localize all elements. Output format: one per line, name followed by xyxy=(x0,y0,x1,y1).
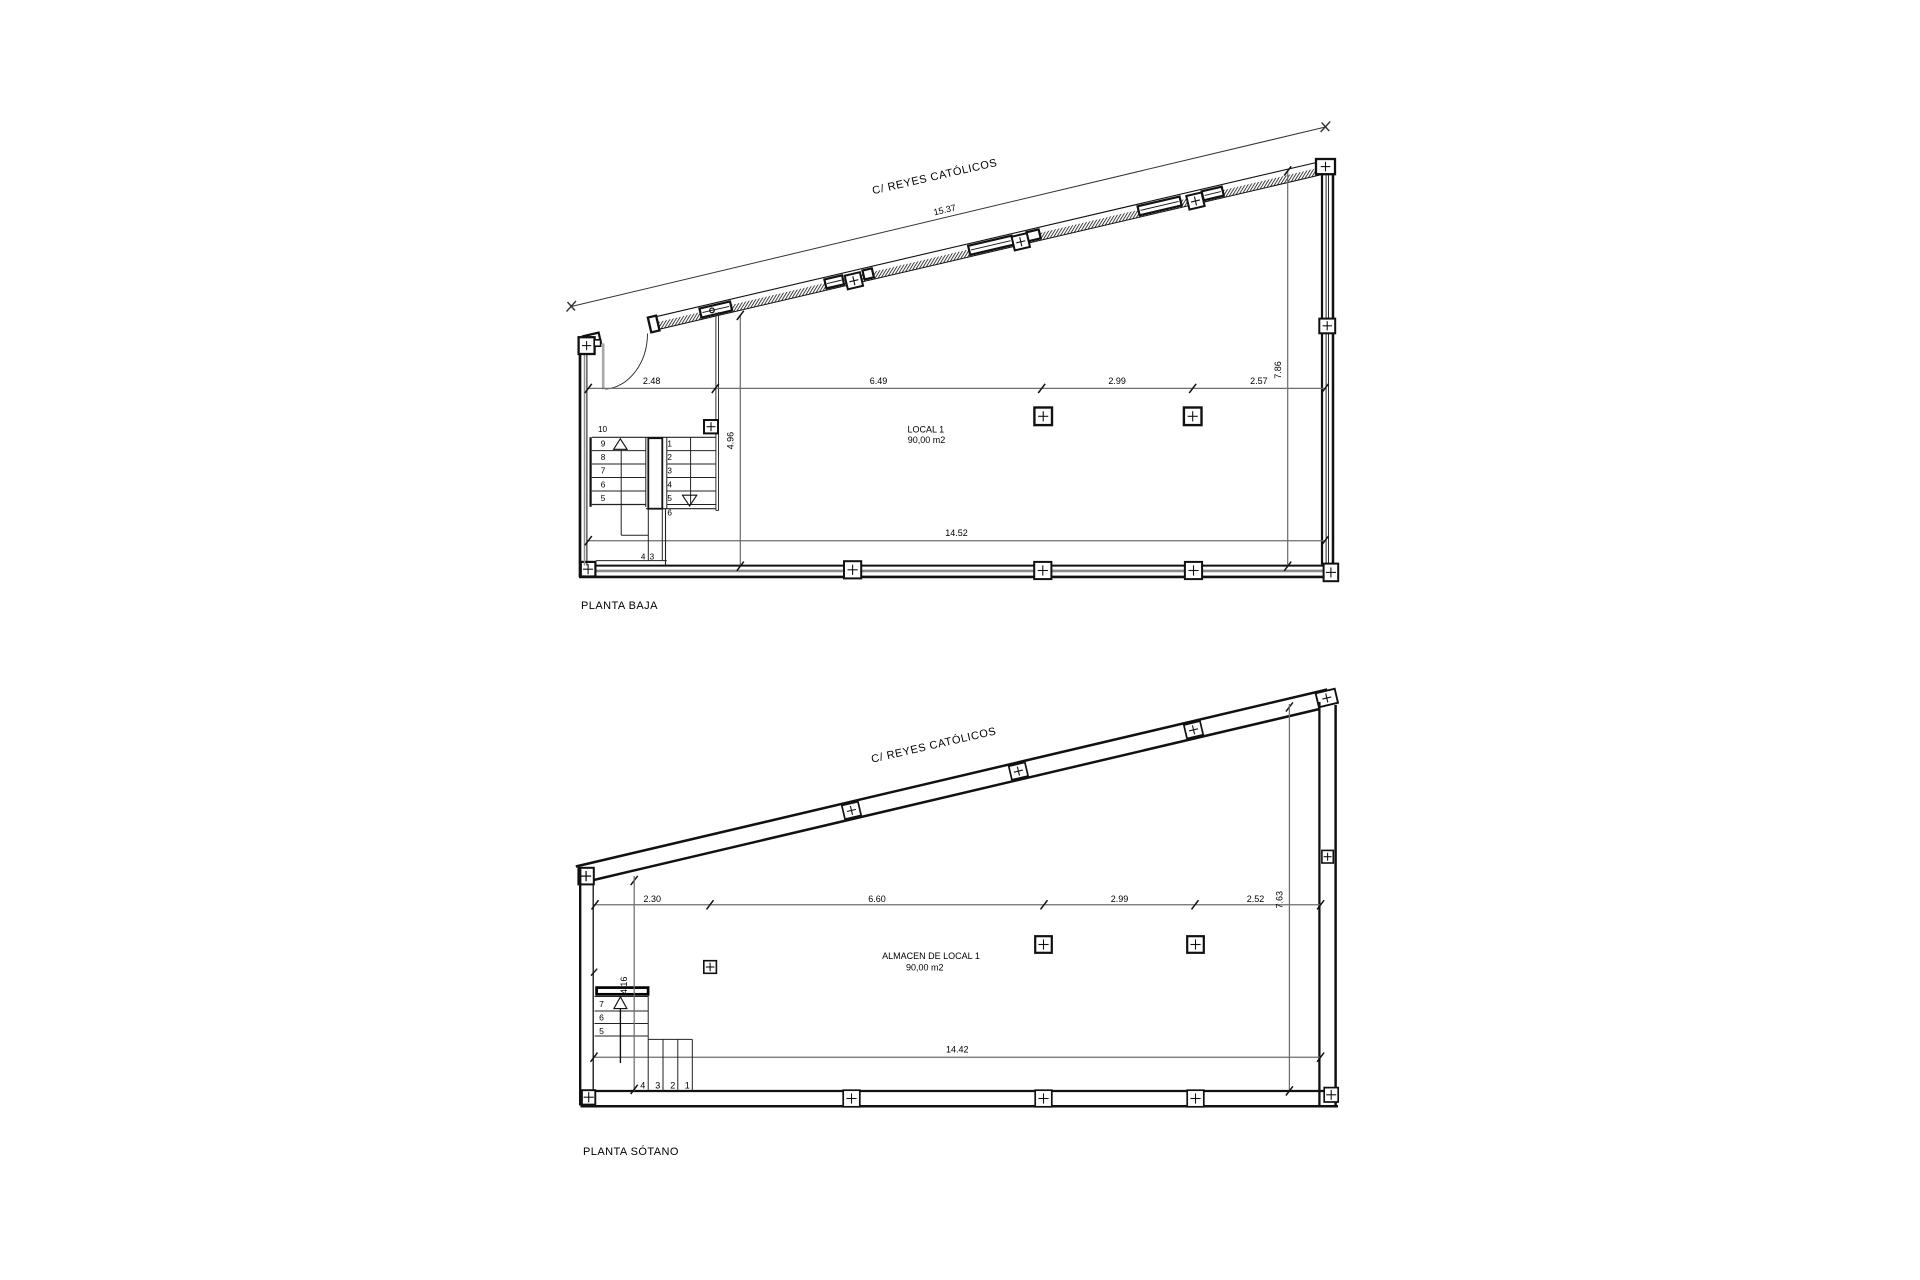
svg-text:3: 3 xyxy=(650,552,655,561)
svg-text:2.99: 2.99 xyxy=(1108,376,1126,386)
svg-text:5: 5 xyxy=(667,494,672,503)
svg-text:4.96: 4.96 xyxy=(725,432,735,450)
svg-text:ALMACEN DE LOCAL 1: ALMACEN DE LOCAL 1 xyxy=(882,951,980,961)
svg-text:14.52: 14.52 xyxy=(945,528,968,538)
svg-text:LOCAL 1: LOCAL 1 xyxy=(907,425,944,435)
svg-text:2.52: 2.52 xyxy=(1247,894,1265,904)
svg-text:3: 3 xyxy=(667,467,672,476)
svg-text:1: 1 xyxy=(685,1081,690,1091)
svg-text:90,00 m2: 90,00 m2 xyxy=(908,435,946,445)
svg-text:2.99: 2.99 xyxy=(1111,894,1129,904)
svg-text:4: 4 xyxy=(640,1081,645,1091)
svg-text:5: 5 xyxy=(599,1026,604,1036)
svg-text:5: 5 xyxy=(601,494,606,503)
svg-text:9: 9 xyxy=(601,439,606,448)
svg-text:7: 7 xyxy=(601,467,606,476)
svg-text:6.49: 6.49 xyxy=(870,376,888,386)
svg-text:4: 4 xyxy=(641,552,646,561)
svg-text:7.86: 7.86 xyxy=(1273,361,1283,379)
svg-text:14.42: 14.42 xyxy=(946,1044,969,1054)
svg-text:7: 7 xyxy=(599,999,604,1009)
svg-text:3: 3 xyxy=(655,1081,660,1091)
svg-text:2.48: 2.48 xyxy=(643,376,661,386)
svg-text:2: 2 xyxy=(667,453,672,462)
svg-text:PLANTA SÓTANO: PLANTA SÓTANO xyxy=(583,1145,679,1158)
svg-text:6: 6 xyxy=(601,480,606,489)
svg-text:2.57: 2.57 xyxy=(1250,376,1268,386)
svg-text:7.63: 7.63 xyxy=(1275,891,1285,909)
svg-text:6: 6 xyxy=(599,1013,604,1023)
svg-text:4.16: 4.16 xyxy=(619,977,629,995)
svg-text:4: 4 xyxy=(667,480,672,489)
svg-text:2: 2 xyxy=(670,1081,675,1091)
svg-text:6.60: 6.60 xyxy=(868,894,886,904)
svg-text:PLANTA BAJA: PLANTA BAJA xyxy=(581,600,658,612)
svg-text:90,00 m2: 90,00 m2 xyxy=(906,963,944,973)
svg-text:10: 10 xyxy=(598,425,608,434)
svg-text:1: 1 xyxy=(667,439,672,448)
svg-text:2.30: 2.30 xyxy=(644,894,662,904)
svg-text:8: 8 xyxy=(601,453,606,462)
svg-text:6: 6 xyxy=(667,508,672,517)
